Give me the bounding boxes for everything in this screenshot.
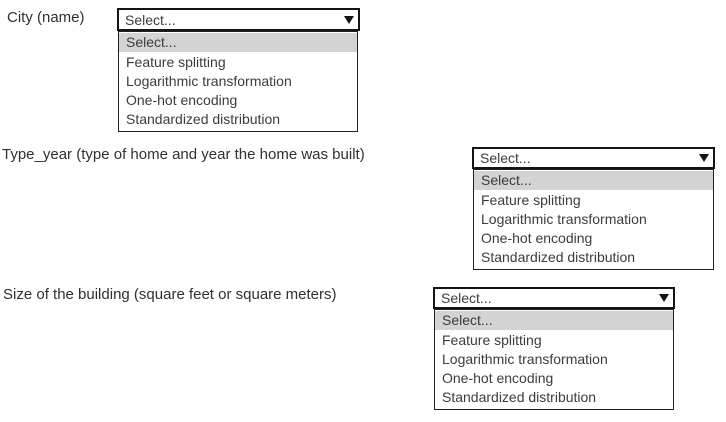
form-canvas: City (name) Select... Select... Feature … (0, 0, 726, 422)
type-year-dropdown-options: Select... Feature splitting Logarithmic … (473, 169, 714, 270)
option-logarithmic-transformation[interactable]: Logarithmic transformation (119, 72, 357, 91)
option-select[interactable]: Select... (119, 33, 357, 52)
dropdown-arrow-icon (344, 16, 354, 24)
option-feature-splitting[interactable]: Feature splitting (474, 191, 713, 210)
option-feature-splitting[interactable]: Feature splitting (435, 331, 673, 350)
city-dropdown-value: Select... (125, 12, 176, 28)
option-select[interactable]: Select... (474, 171, 713, 190)
type-year-dropdown-value: Select... (480, 150, 531, 166)
size-dropdown[interactable]: Select... (433, 287, 675, 309)
city-dropdown-options: Select... Feature splitting Logarithmic … (118, 31, 358, 132)
option-standardized-distribution[interactable]: Standardized distribution (119, 110, 357, 129)
dropdown-arrow-icon (659, 294, 669, 302)
field-label-size: Size of the building (square feet or squ… (3, 286, 337, 303)
size-dropdown-value: Select... (441, 290, 492, 306)
type-year-dropdown[interactable]: Select... (472, 147, 715, 169)
option-logarithmic-transformation[interactable]: Logarithmic transformation (474, 210, 713, 229)
dropdown-arrow-icon (699, 154, 709, 162)
option-standardized-distribution[interactable]: Standardized distribution (474, 248, 713, 267)
field-label-type-year: Type_year (type of home and year the hom… (2, 146, 365, 163)
option-one-hot-encoding[interactable]: One-hot encoding (474, 229, 713, 248)
field-label-city: City (name) (7, 9, 85, 26)
option-logarithmic-transformation[interactable]: Logarithmic transformation (435, 350, 673, 369)
option-select[interactable]: Select... (435, 311, 673, 330)
size-dropdown-options: Select... Feature splitting Logarithmic … (434, 309, 674, 410)
option-one-hot-encoding[interactable]: One-hot encoding (435, 369, 673, 388)
option-one-hot-encoding[interactable]: One-hot encoding (119, 91, 357, 110)
city-dropdown[interactable]: Select... (117, 8, 360, 31)
option-standardized-distribution[interactable]: Standardized distribution (435, 388, 673, 407)
option-feature-splitting[interactable]: Feature splitting (119, 53, 357, 72)
